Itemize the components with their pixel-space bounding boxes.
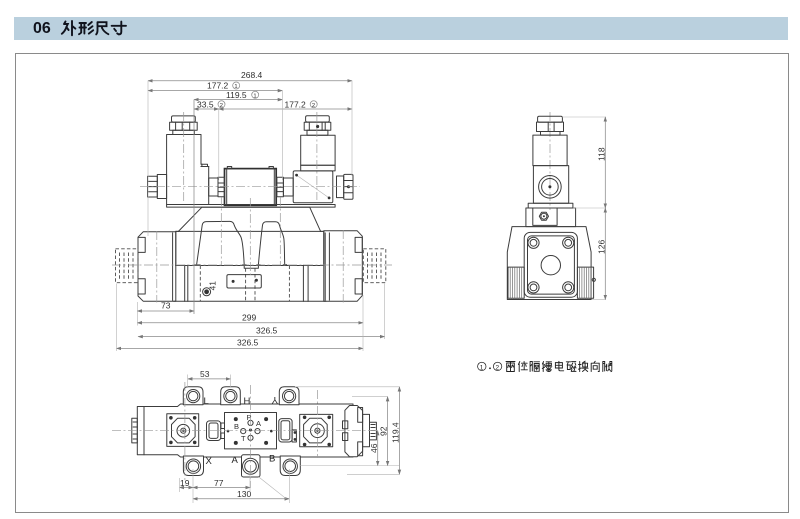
svg-text:1: 1	[480, 364, 484, 371]
svg-text:Y: Y	[271, 394, 278, 405]
svg-text:H: H	[244, 396, 251, 407]
svg-text:119.4: 119.4	[390, 422, 400, 443]
svg-text:299: 299	[242, 313, 256, 323]
svg-text:2: 2	[312, 103, 315, 109]
svg-text:126: 126	[597, 240, 607, 254]
svg-text:92: 92	[379, 426, 389, 436]
svg-text:2: 2	[496, 364, 500, 371]
svg-text:53: 53	[200, 369, 210, 379]
svg-text:326.5: 326.5	[237, 338, 259, 348]
svg-text:A: A	[232, 455, 239, 466]
svg-text:P: P	[247, 413, 252, 422]
svg-text:2: 2	[220, 103, 223, 109]
svg-text:46: 46	[369, 443, 379, 453]
svg-text:X: X	[206, 456, 213, 467]
svg-text:19: 19	[180, 478, 190, 488]
svg-text:B: B	[269, 454, 275, 465]
svg-text:118: 118	[597, 147, 607, 161]
svg-text:130: 130	[237, 489, 251, 499]
svg-text:T: T	[241, 434, 246, 443]
svg-text:1: 1	[253, 93, 256, 99]
svg-text:33.5: 33.5	[197, 99, 214, 109]
svg-text:B: B	[234, 422, 239, 431]
svg-text:73: 73	[161, 301, 171, 311]
svg-text:L: L	[204, 396, 209, 407]
svg-text:268.4: 268.4	[241, 70, 263, 80]
svg-text:41: 41	[208, 281, 218, 291]
svg-text:A: A	[256, 419, 261, 428]
svg-text:177.2: 177.2	[285, 99, 307, 109]
svg-text:77: 77	[214, 478, 224, 488]
svg-text:326.5: 326.5	[256, 326, 278, 336]
svg-text:119.5: 119.5	[226, 90, 247, 100]
